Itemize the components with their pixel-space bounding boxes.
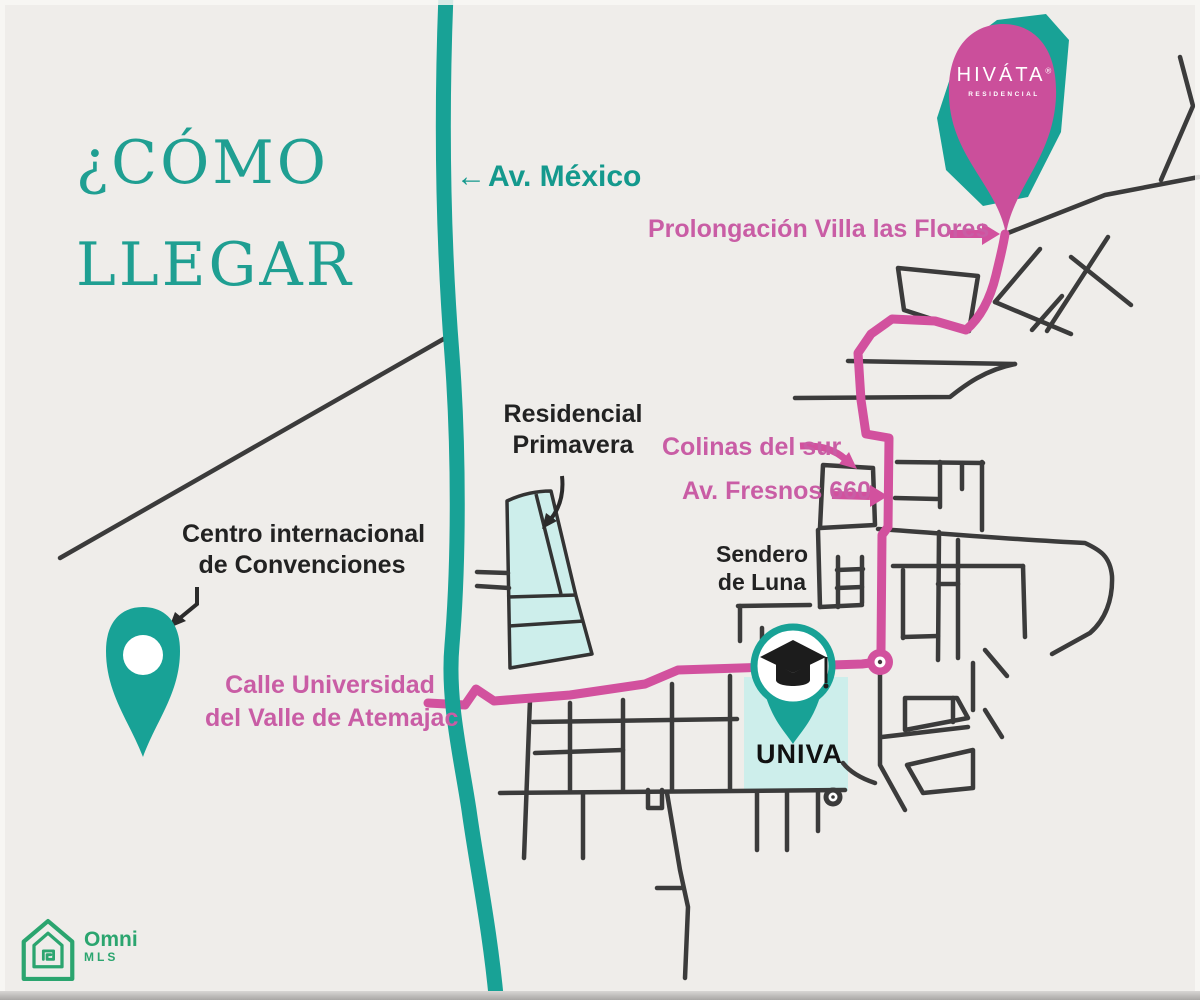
hivata-balloon-pin-icon xyxy=(949,24,1056,234)
hivata-subtitle: RESIDENCIAL xyxy=(946,91,1062,98)
route-node xyxy=(867,649,893,675)
how-to-get-there-map: ¿CÓMO LLEGAR ←Av. México Prolongación Vi… xyxy=(0,0,1200,1000)
left-arrow-icon: ← xyxy=(456,160,486,193)
omni-mls-logo: Omni MLS xyxy=(20,916,138,984)
street-node xyxy=(824,788,843,807)
logo-sub: MLS xyxy=(84,950,138,964)
centro-location-pin-icon xyxy=(106,607,180,757)
colinas-del-sur-label: Colinas del sur xyxy=(662,433,841,462)
page-title: ¿CÓMO LLEGAR xyxy=(76,112,354,316)
bottom-edge-bar xyxy=(0,991,1200,1000)
centro-convenciones-label: Centro internacional de Convenciones xyxy=(182,519,422,581)
centro-pointer-arrow xyxy=(169,587,197,628)
house-icon xyxy=(20,916,76,984)
av-fresnos-label: Av. Fresnos 660 xyxy=(682,477,871,506)
residencial-primavera-label: Residencial Primavera xyxy=(498,399,648,461)
registered-mark: ® xyxy=(1045,66,1051,75)
av-mexico-road xyxy=(443,0,497,1000)
sendero-de-luna-label: Sendero de Luna xyxy=(712,540,812,596)
hivata-name: HIVÁTA xyxy=(957,64,1046,86)
av-mexico-label: ←Av. México xyxy=(456,160,641,194)
hivata-pin-text: HIVÁTA® RESIDENCIAL xyxy=(946,64,1062,98)
calle-universidad-label: Calle Universidad del Valle de Atemajac xyxy=(205,669,455,735)
prolongacion-label: Prolongación Villa las Flores xyxy=(648,215,989,244)
title-line1: ¿CÓMO xyxy=(76,112,354,214)
univa-label: UNIVA xyxy=(756,739,843,770)
title-line2: LLEGAR xyxy=(76,214,354,316)
logo-brand: Omni xyxy=(84,930,138,950)
